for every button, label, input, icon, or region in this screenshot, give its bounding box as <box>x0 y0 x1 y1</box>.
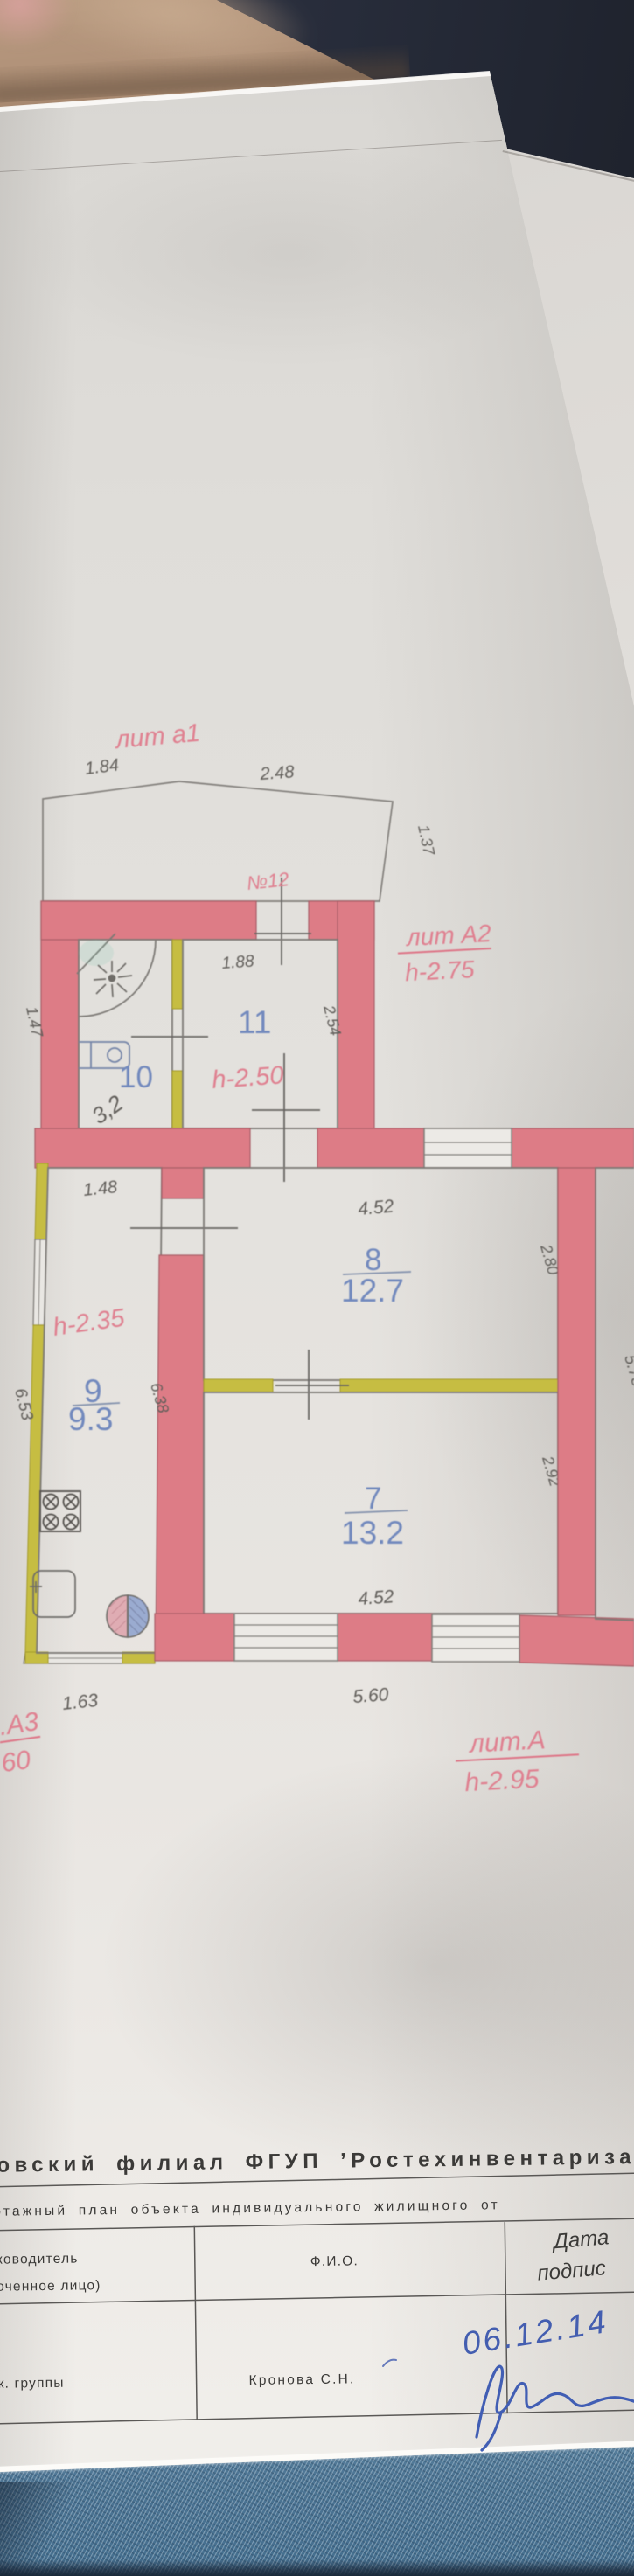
svg-text:этажный план объекта индивидуа: этажный план объекта индивидуального жил… <box>0 2198 500 2219</box>
svg-text:06.12.14: 06.12.14 <box>460 2303 610 2362</box>
svg-text:Дата: Дата <box>550 2225 610 2253</box>
svg-text:Ф.И.О.: Ф.И.О. <box>310 2253 359 2269</box>
svg-text:ководитель: ководитель <box>0 2252 79 2267</box>
svg-text:к. группы: к. группы <box>0 2376 65 2392</box>
svg-text:Кронова С.Н.: Кронова С.Н. <box>248 2371 355 2388</box>
svg-text:оченное лицо): оченное лицо) <box>0 2278 101 2295</box>
svg-text:овский филиал ФГУП ’Ростехинве: овский филиал ФГУП ’Ростехинвентаризаци <box>0 2145 634 2177</box>
svg-text:подпис: подпис <box>536 2256 606 2285</box>
